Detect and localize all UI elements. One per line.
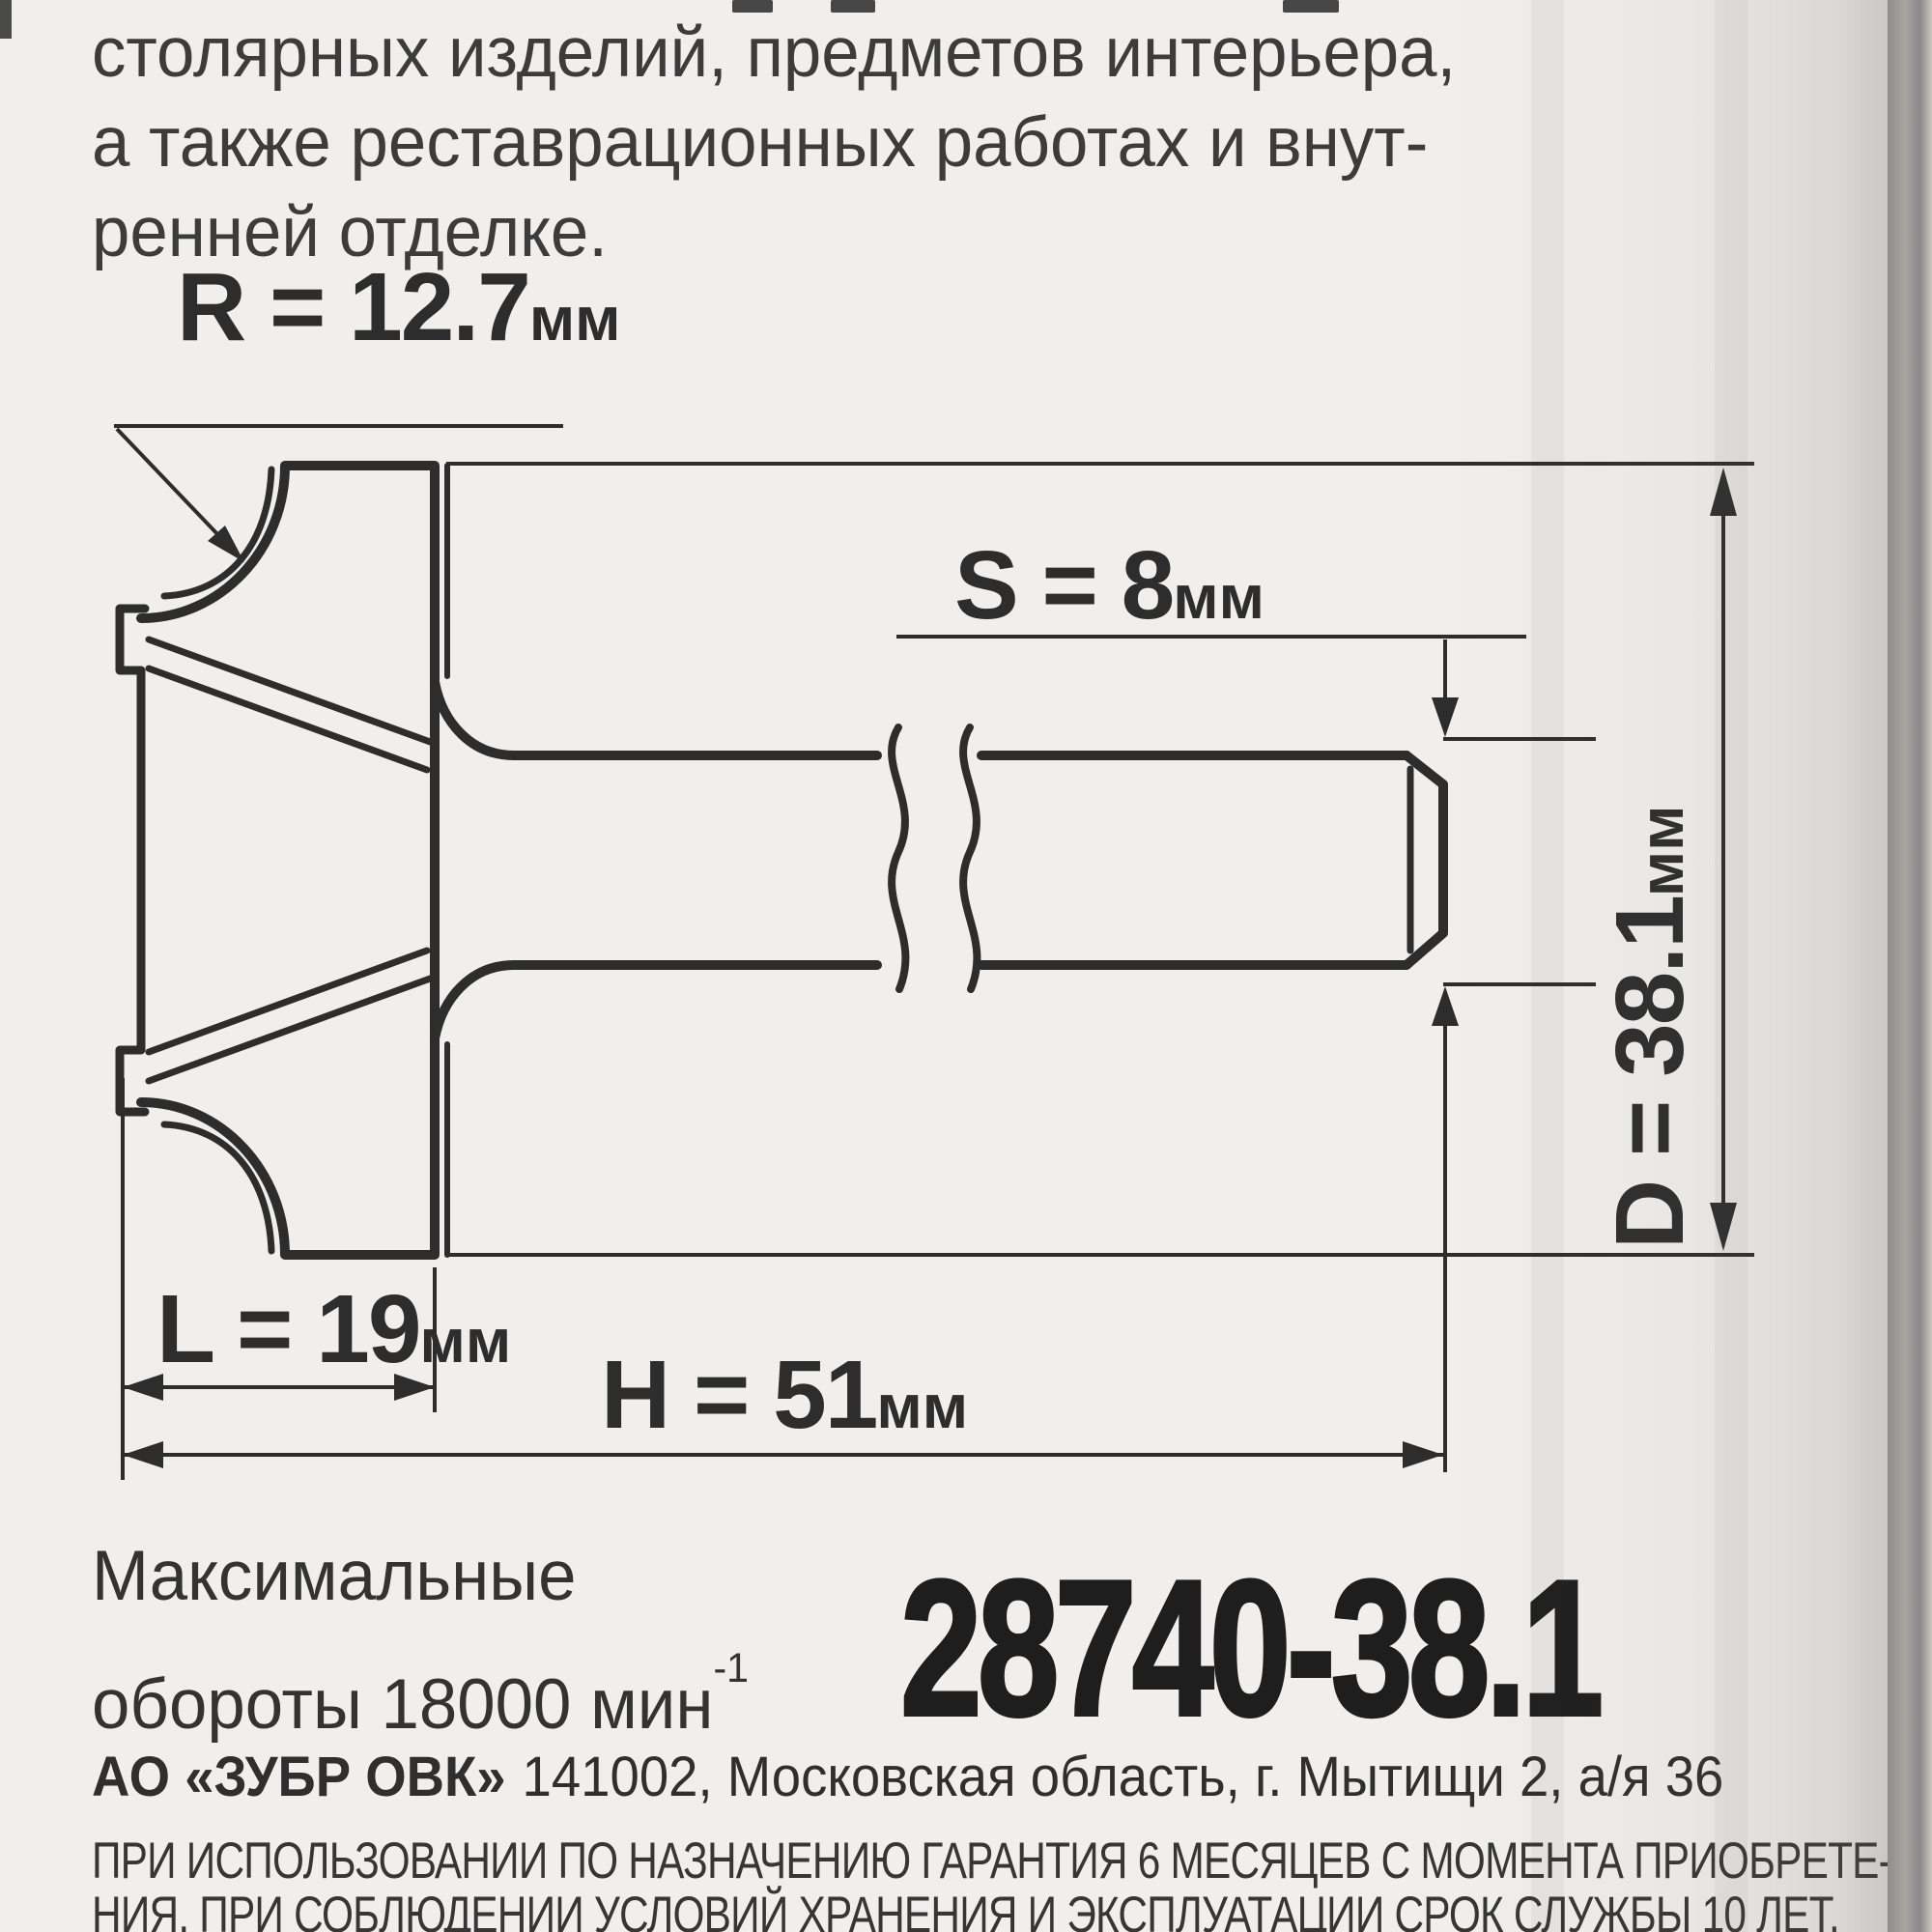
carbide-tip-line xyxy=(164,1124,271,1251)
flute-line xyxy=(149,639,433,743)
package-shading xyxy=(1715,0,1747,1932)
article-number: 28740-38.1 xyxy=(900,1538,1600,1760)
max-rpm-line1: Максимальные xyxy=(92,1530,749,1622)
cutting-length-label: L = 19мм xyxy=(156,1275,511,1383)
break-symbol-wave xyxy=(892,727,905,989)
max-rpm-spec: Максимальные обороты 18000 мин-1 xyxy=(92,1530,749,1750)
flute-line xyxy=(149,951,427,1052)
cutting-diameter-label: D = 38.1мм xyxy=(1596,806,1704,1250)
flute-line xyxy=(149,668,427,770)
h-arrowhead-right xyxy=(1403,1441,1443,1468)
warranty-text-line2: НИЯ. ПРИ СОБЛЮДЕНИИ УСЛОВИЙ ХРАНЕНИЯ И Э… xyxy=(92,1886,1839,1932)
overall-length-label: H = 51мм xyxy=(601,1341,968,1449)
shank-diameter-label: S = 8мм xyxy=(954,531,1264,639)
s-arrowhead-up xyxy=(1432,986,1459,1026)
package-side-edge xyxy=(1888,0,1932,1932)
max-rpm-line2: обороты 18000 мин-1 xyxy=(92,1622,749,1750)
radius-label: R = 12.7мм xyxy=(177,253,621,361)
radius-leader-line xyxy=(114,426,563,559)
warranty-text-line1: ПРИ ИСПОЛЬЗОВАНИИ ПО НАЗНАЧЕНИЮ ГАРАНТИЯ… xyxy=(92,1832,1891,1890)
flute-line xyxy=(149,978,433,1081)
package-front-panel: столярных изделий, предметов интерьера, … xyxy=(0,0,1932,1932)
break-symbol-wave xyxy=(963,727,977,989)
cutter-tips-outline xyxy=(120,609,145,1112)
cutter-body-outline xyxy=(141,466,435,1255)
manufacturer-address: АО «ЗУБР ОВК»141002, Московская область,… xyxy=(92,1745,1723,1809)
s-arrowhead-down xyxy=(1432,697,1459,737)
neck-fillet xyxy=(435,965,514,1038)
package-shading xyxy=(1531,0,1564,1932)
manufacturer-name: АО «ЗУБР ОВК» xyxy=(92,1746,506,1808)
rpm-superscript: -1 xyxy=(713,1645,749,1690)
h-arrowhead-left xyxy=(123,1441,163,1468)
neck-fillet xyxy=(435,682,514,755)
